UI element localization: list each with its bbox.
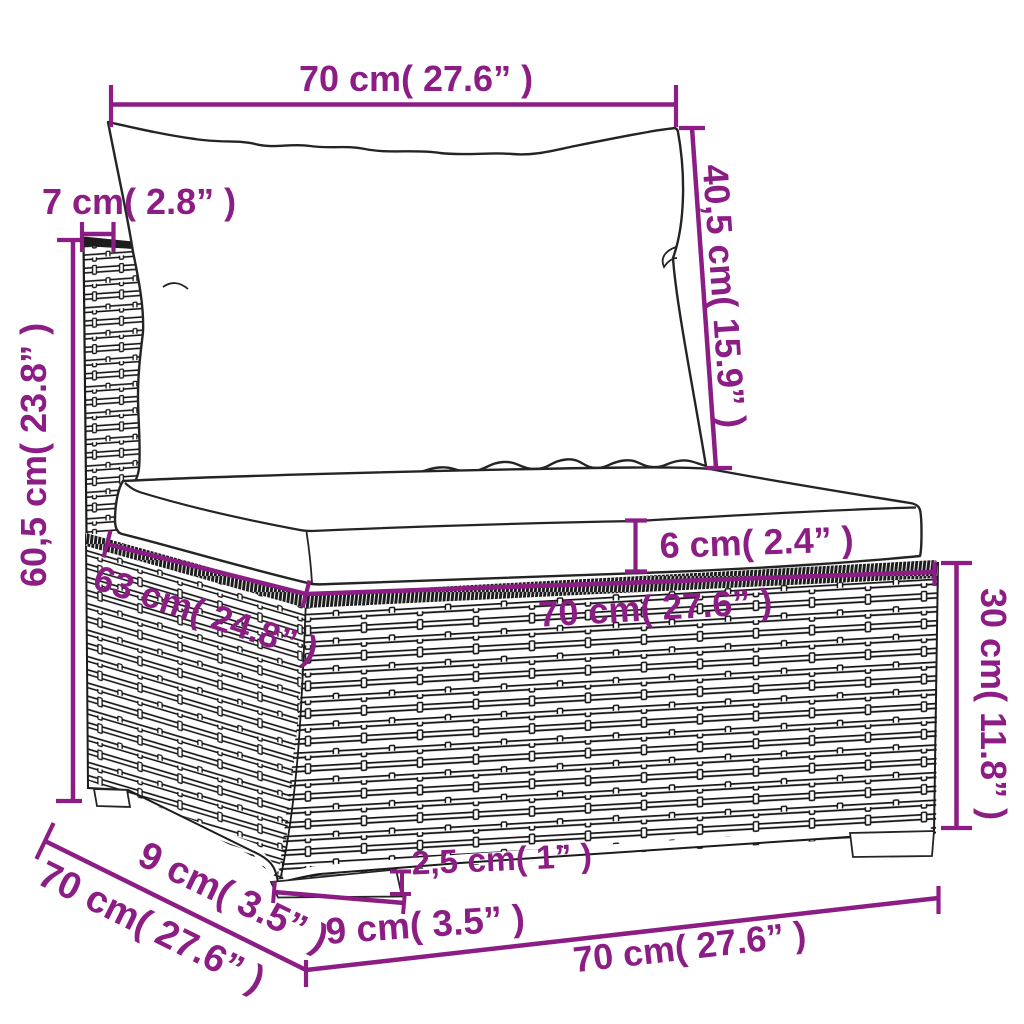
- svg-text:7 cm( 2.8” ): 7 cm( 2.8” ): [42, 181, 236, 222]
- svg-text:2,5 cm( 1” ): 2,5 cm( 1” ): [411, 838, 593, 883]
- svg-text:70 cm( 27.6” ): 70 cm( 27.6” ): [299, 58, 533, 99]
- svg-text:30 cm( 11.8” ): 30 cm( 11.8” ): [973, 588, 1014, 820]
- svg-text:6 cm( 2.4” ): 6 cm( 2.4” ): [659, 518, 854, 566]
- svg-text:60,5 cm( 23.8” ): 60,5 cm( 23.8” ): [13, 323, 54, 587]
